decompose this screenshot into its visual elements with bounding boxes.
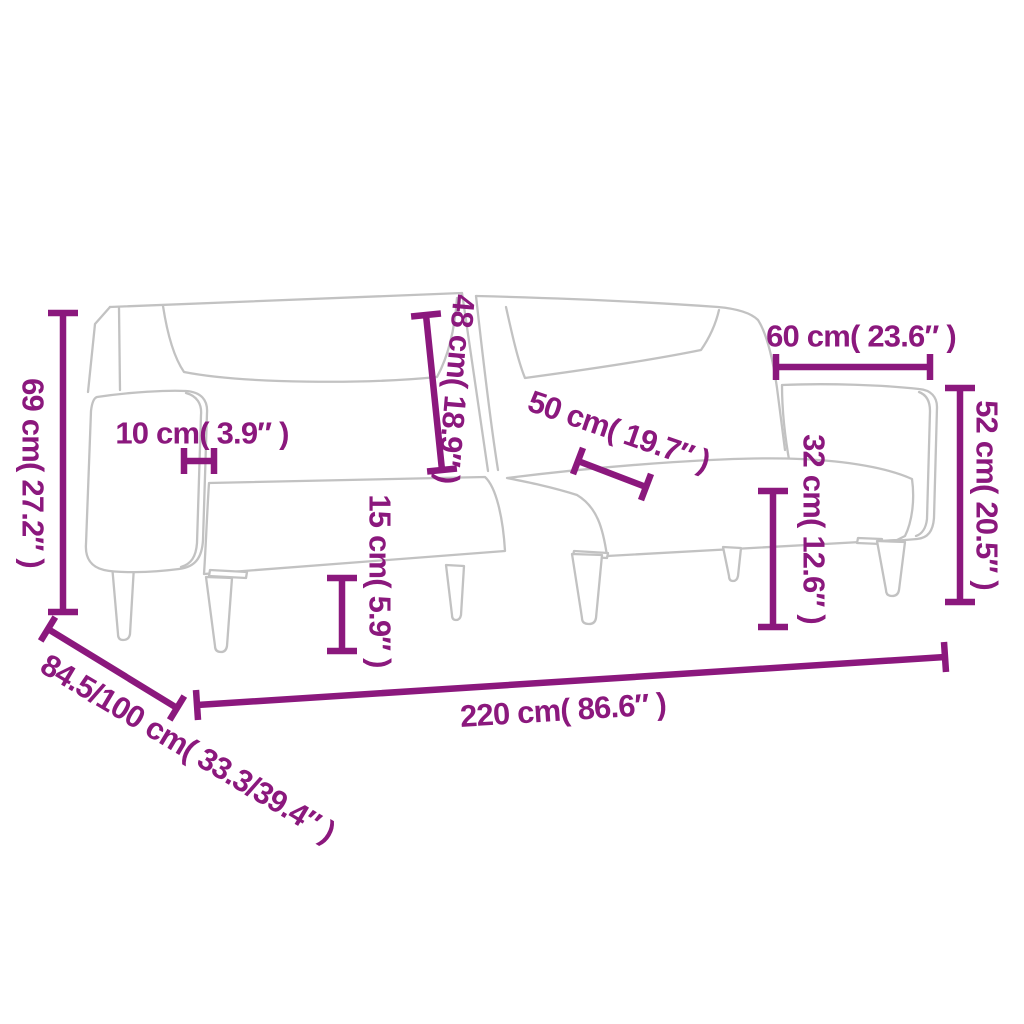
seat-right-section bbox=[507, 458, 913, 556]
dim-line-leg-height bbox=[327, 578, 357, 651]
sofa-leg-front-right bbox=[877, 541, 905, 596]
sofa-leg-front-left bbox=[206, 577, 232, 652]
sofa-line-drawing bbox=[0, 0, 1024, 1024]
sofa-back-left-edge bbox=[88, 307, 110, 392]
dim-label-right-section-width: 60 cm( 23.6″ ) bbox=[766, 321, 956, 352]
sofa-leg-rear-left bbox=[112, 565, 134, 640]
dim-line-overall-height bbox=[48, 313, 78, 612]
seat-left-section bbox=[204, 477, 505, 574]
dim-line-right-section-width bbox=[776, 354, 930, 380]
sofa-leg-rear-right bbox=[723, 547, 741, 581]
dim-label-armrest-width: 10 cm( 3.9″ ) bbox=[115, 418, 288, 449]
dim-label-leg-height: 15 cm( 5.9″ ) bbox=[365, 494, 396, 667]
dim-label-seat-height: 32 cm( 12.6″ ) bbox=[799, 434, 830, 624]
dimension-diagram: 69 cm( 27.2″ ) 10 cm( 3.9″ ) 48 cm( 18.9… bbox=[0, 0, 1024, 1024]
sofa-back-left-inner-edge bbox=[119, 308, 120, 390]
backrest-cushion-left-inset bbox=[163, 298, 457, 382]
dim-label-overall-height: 69 cm( 27.2″ ) bbox=[18, 378, 49, 568]
backrest-cushion-right-inset bbox=[506, 307, 719, 378]
sofa-leg-rear-middle bbox=[446, 565, 464, 620]
sofa-leg-front-middle bbox=[572, 554, 602, 624]
dim-label-right-backrest-height: 52 cm( 20.5″ ) bbox=[972, 400, 1003, 590]
